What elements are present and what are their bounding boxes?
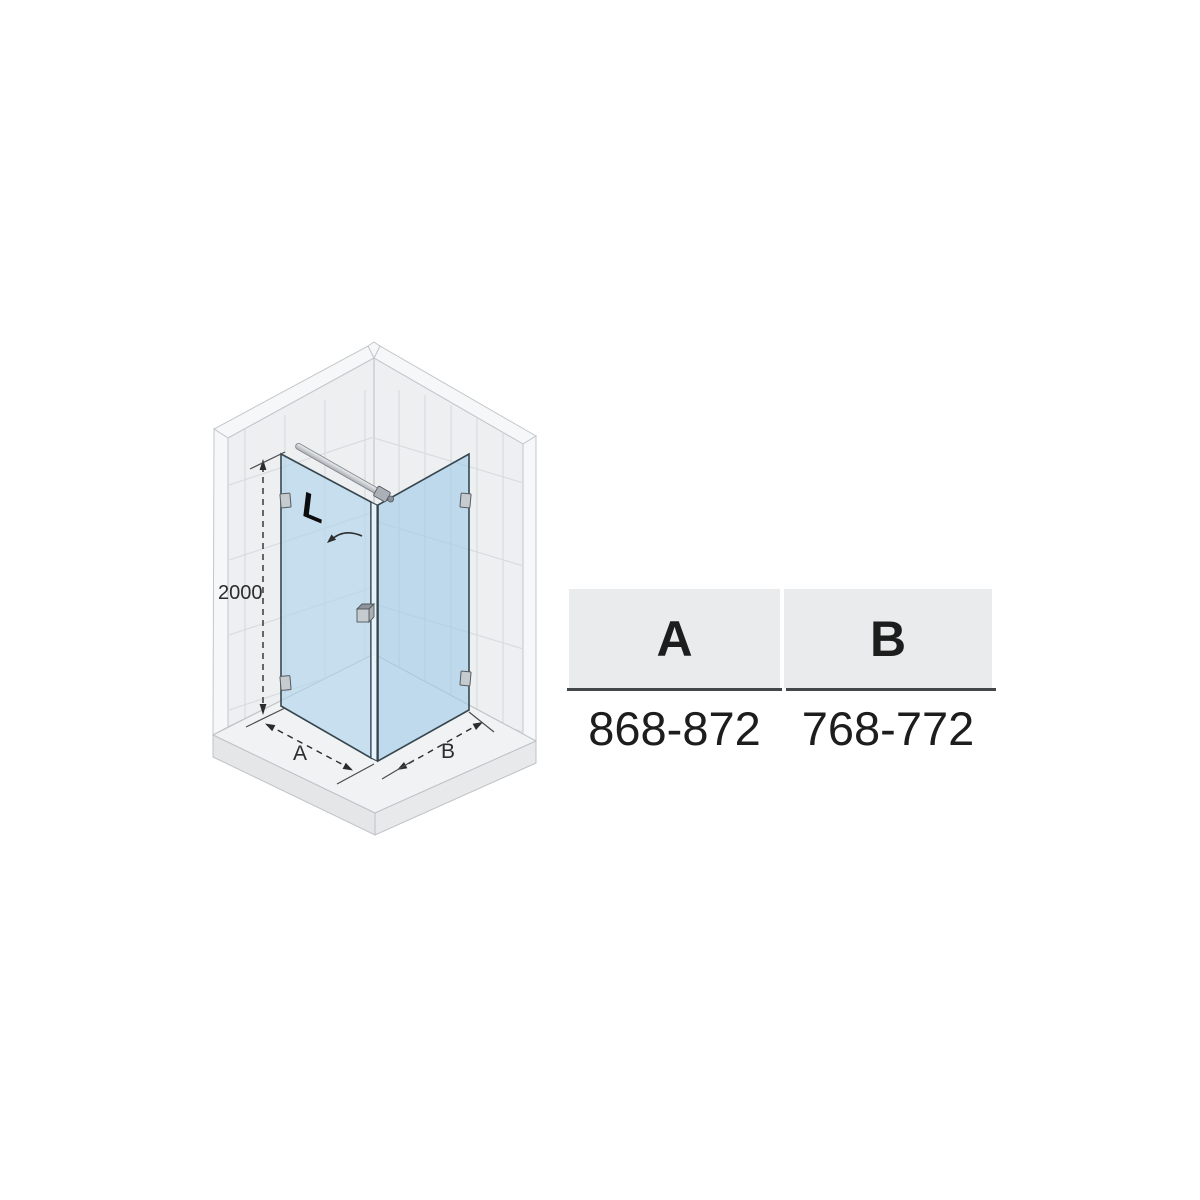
height-dimension-label: 2000	[218, 582, 262, 605]
technical-drawing-page: L 2000 A B A B 868-872 768-772	[0, 0, 1200, 1200]
table-rule-b	[786, 688, 996, 691]
table-value-b: 768-772	[784, 700, 992, 756]
door-hinge-top	[280, 493, 291, 508]
door-hinge-bottom	[280, 676, 291, 691]
panel-bracket-top	[460, 493, 471, 508]
table-header-b: B	[784, 589, 992, 688]
table-value-a: 868-872	[569, 700, 780, 756]
glass-door	[281, 454, 371, 758]
floor-dimension-a-label: A	[293, 742, 307, 766]
panel-bracket-bottom	[460, 671, 471, 686]
floor-dimension-b-label: B	[441, 740, 455, 764]
table-header-a: A	[569, 589, 780, 688]
glass-door-edge	[371, 502, 377, 761]
door-handle	[357, 604, 374, 622]
table-rule-a	[567, 688, 782, 691]
